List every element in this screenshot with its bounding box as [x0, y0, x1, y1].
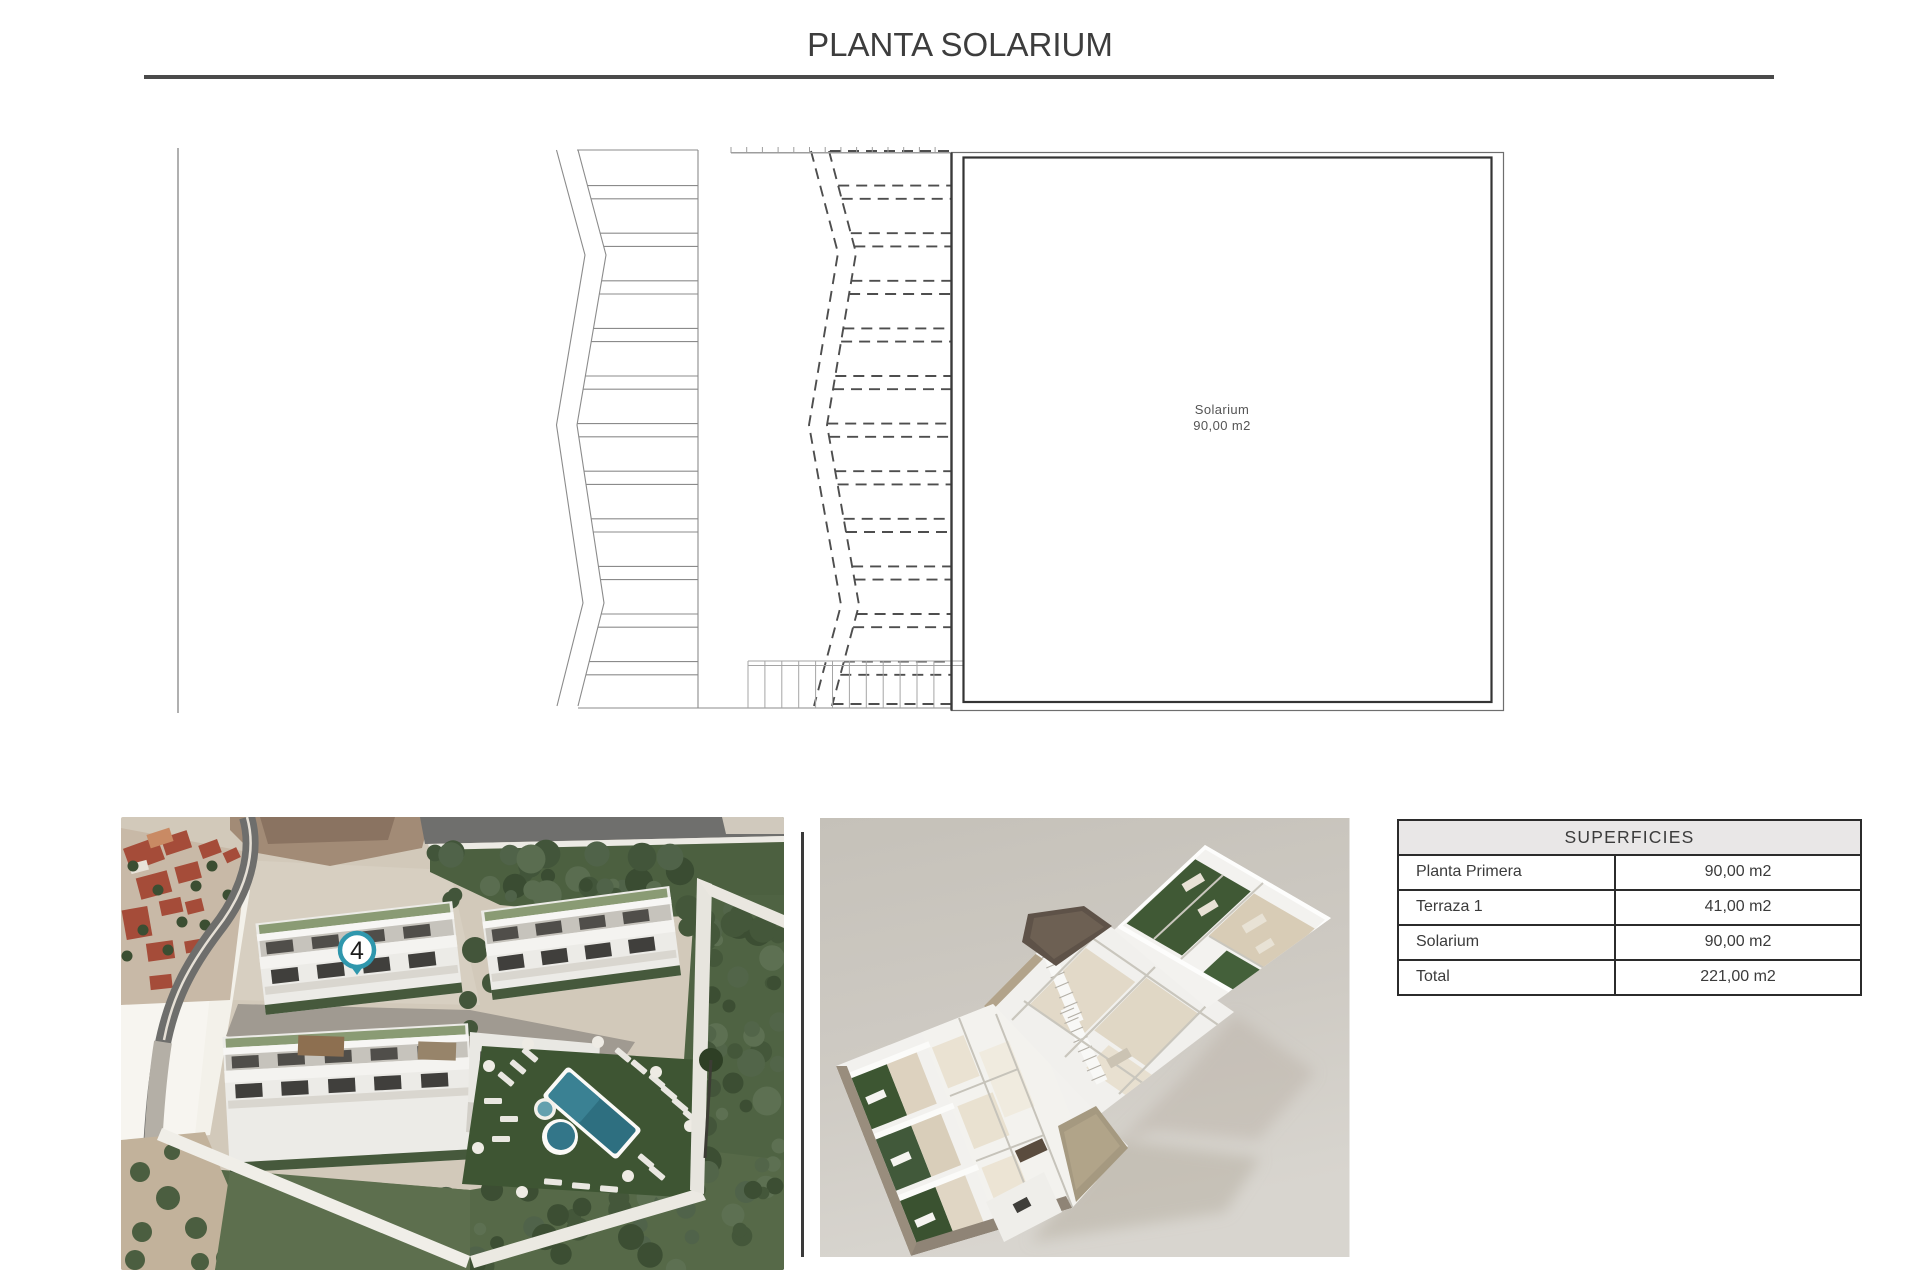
svg-text:90,00 m2: 90,00 m2	[1193, 418, 1250, 433]
svg-text:Solarium: Solarium	[1195, 402, 1250, 417]
svg-text:4: 4	[350, 937, 364, 965]
